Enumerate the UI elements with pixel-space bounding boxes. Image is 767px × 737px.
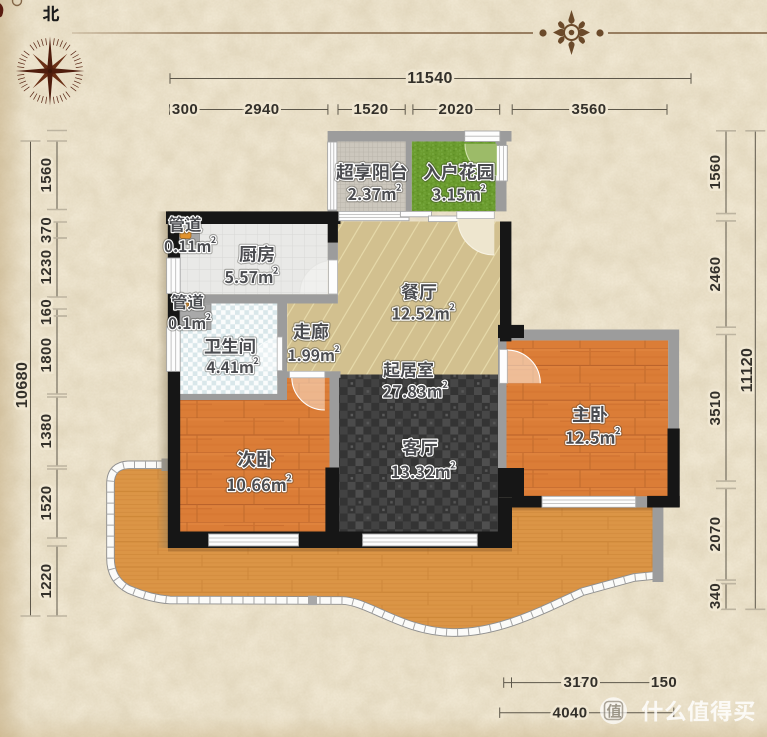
svg-text:300: 300 [172, 101, 198, 118]
svg-text:1380: 1380 [38, 414, 55, 449]
svg-text:10680: 10680 [14, 362, 31, 409]
svg-text:3560: 3560 [572, 101, 607, 118]
svg-text:1800: 1800 [38, 338, 55, 373]
svg-text:3170: 3170 [564, 674, 599, 691]
svg-text:1520: 1520 [38, 486, 55, 521]
svg-text:1520: 1520 [354, 101, 389, 118]
svg-text:4040: 4040 [553, 705, 588, 722]
svg-text:2020: 2020 [439, 101, 474, 118]
svg-text:1560: 1560 [38, 158, 55, 193]
svg-text:370: 370 [38, 217, 55, 243]
svg-text:11120: 11120 [739, 348, 756, 393]
svg-text:2460: 2460 [707, 257, 724, 292]
svg-text:11540: 11540 [407, 70, 453, 87]
svg-text:340: 340 [707, 583, 724, 609]
svg-text:150: 150 [651, 674, 677, 691]
svg-text:1560: 1560 [707, 155, 724, 190]
svg-text:3510: 3510 [707, 391, 724, 426]
svg-text:160: 160 [38, 299, 55, 325]
svg-text:1230: 1230 [38, 250, 55, 285]
svg-text:2070: 2070 [707, 517, 724, 552]
svg-text:2940: 2940 [245, 101, 280, 118]
svg-text:1220: 1220 [38, 564, 55, 599]
